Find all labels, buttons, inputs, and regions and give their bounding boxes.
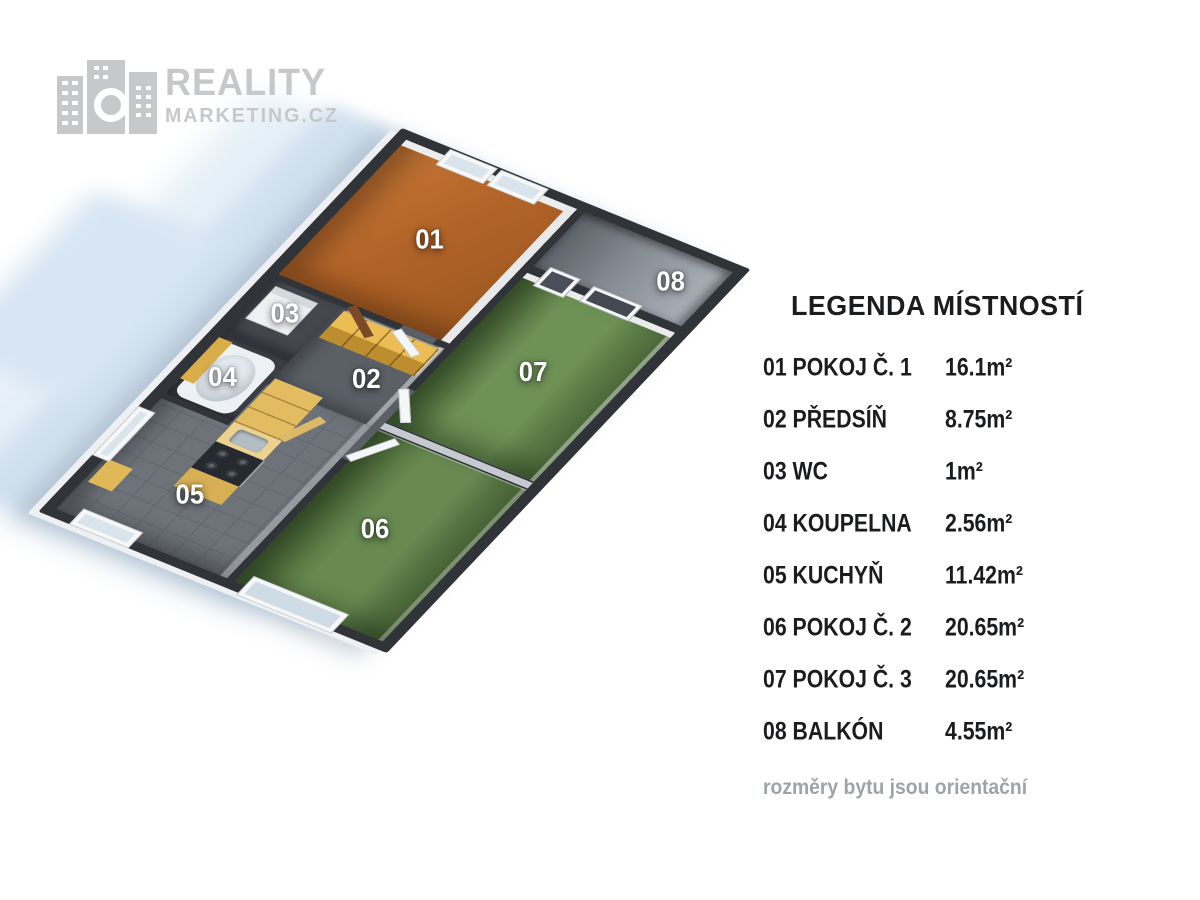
floorplan: 01 02 03 04 05 06 07 08 [38,128,750,653]
legend-row-area: 20.65m² [945,666,1024,695]
buildings-icon [57,58,157,134]
legend-row: 02 PŘEDSÍŇ 8.75m² [763,394,1103,446]
legend-row-label: 01 POKOJ Č. 1 [763,354,912,383]
legend-row-label: 03 WC [763,458,828,487]
legend-row: 08 BALKÓN 4.55m² [763,706,1103,758]
legend-footnote: rozměry bytu jsou orientační [763,776,1027,800]
legend-row-area: 20.65m² [945,614,1024,643]
brand-logo: REALITY MARKETING.CZ [57,58,377,138]
legend-title: LEGENDA MÍSTNOSTÍ [791,290,1083,322]
building-icon-middle [87,60,125,134]
room-label-01: 01 [388,221,471,257]
legend-row-label: 04 KOUPELNA [763,510,912,539]
room-label-03: 03 [243,296,326,332]
room-label-08: 08 [629,264,712,300]
legend-row-label: 02 PŘEDSÍŇ [763,406,887,435]
room-label-05: 05 [148,477,231,513]
room-label-02: 02 [325,361,408,397]
building-icon-right [129,72,157,134]
legend-row-label: 07 POKOJ Č. 3 [763,666,912,695]
legend-rows: 01 POKOJ Č. 1 16.1m² 02 PŘEDSÍŇ 8.75m² 0… [763,342,1103,758]
legend-row-label: 05 KUCHYŇ [763,562,883,591]
legend-row-label: 08 BALKÓN [763,718,883,747]
legend-row-area: 2.56m² [945,510,1012,539]
circle-window-icon [94,88,128,122]
legend-row-area: 1m² [945,458,983,487]
room-label-06: 06 [334,511,417,547]
legend-row-area: 11.42m² [945,562,1023,591]
legend-row: 03 WC 1m² [763,446,1103,498]
legend-row-area: 16.1m² [945,354,1012,383]
legend-row: 05 KUCHYŇ 11.42m² [763,550,1103,602]
legend-row: 01 POKOJ Č. 1 16.1m² [763,342,1103,394]
room-label-07: 07 [492,354,575,390]
legend-row: 04 KOUPELNA 2.56m² [763,498,1103,550]
logo-text: REALITY MARKETING.CZ [165,62,342,128]
page: 01 02 03 04 05 06 07 08 REALITY MARKETIN… [0,0,1200,900]
legend-row: 06 POKOJ Č. 2 20.65m² [763,602,1103,654]
room-label-04: 04 [181,359,264,395]
legend-row-label: 06 POKOJ Č. 2 [763,614,912,643]
legend-row-area: 4.55m² [945,718,1012,747]
logo-line1: REALITY [165,62,333,105]
logo-line2: MARKETING.CZ [165,105,339,128]
legend-row: 07 POKOJ Č. 3 20.65m² [763,654,1103,706]
legend-row-area: 8.75m² [945,406,1012,435]
building-icon-left [57,76,83,134]
